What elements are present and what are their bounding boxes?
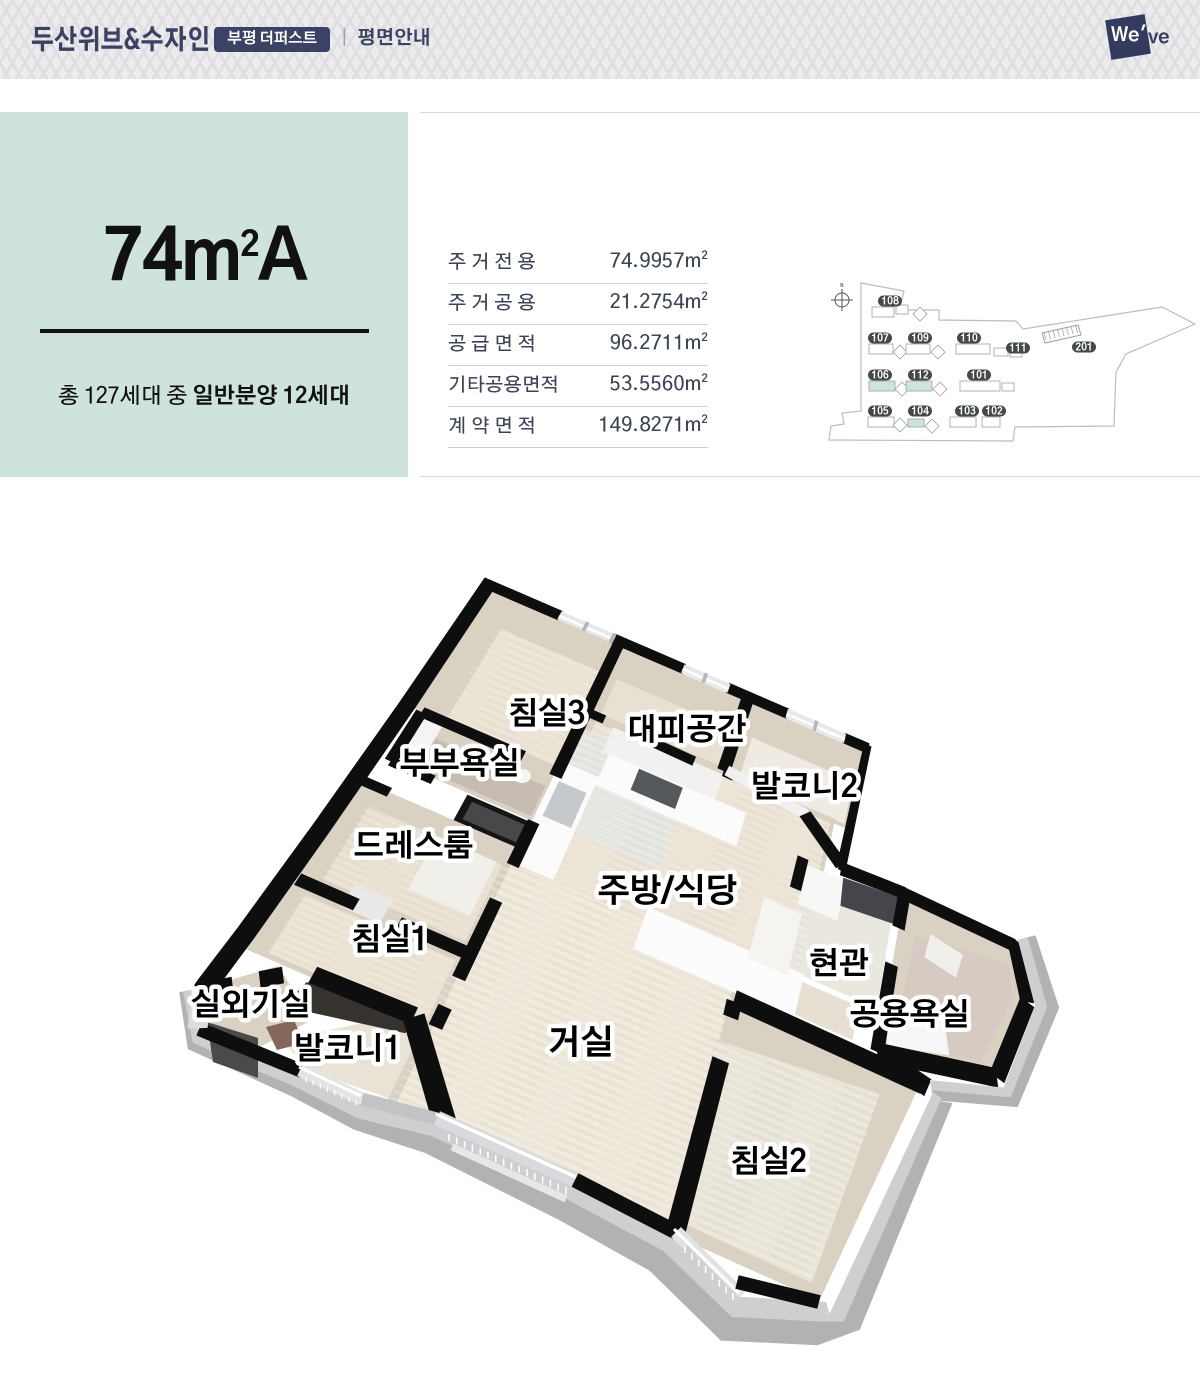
svg-text:침실2: 침실2 <box>730 1146 807 1179</box>
svg-text:발코니1: 발코니1 <box>294 1033 401 1066</box>
svg-text:주방/식당: 주방/식당 <box>597 874 737 909</box>
svg-text:드레스룸: 드레스룸 <box>353 830 473 863</box>
svg-text:침실1: 침실1 <box>351 924 428 957</box>
svg-text:실외기실: 실외기실 <box>190 989 310 1022</box>
svg-text:공용욕실: 공용욕실 <box>849 999 969 1032</box>
svg-text:대피공간: 대피공간 <box>626 714 746 747</box>
svg-text:침실3: 침실3 <box>508 698 585 731</box>
svg-text:현관: 현관 <box>808 947 869 981</box>
svg-text:발코니2: 발코니2 <box>751 771 858 804</box>
svg-text:거실: 거실 <box>547 1025 613 1061</box>
svg-text:부부욕실: 부부욕실 <box>399 748 519 781</box>
